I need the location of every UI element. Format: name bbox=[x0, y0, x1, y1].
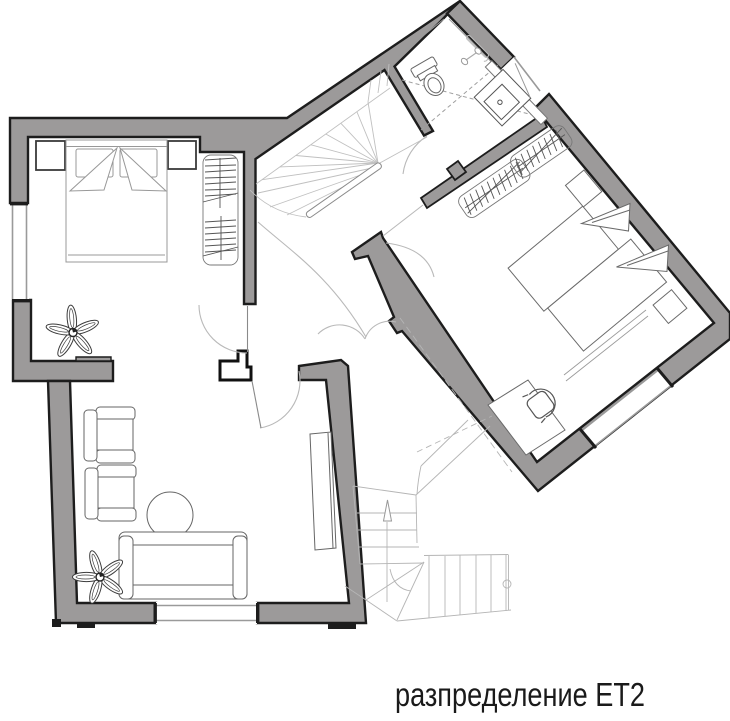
svg-text:разпределение ЕТ2: разпределение ЕТ2 bbox=[395, 676, 645, 713]
